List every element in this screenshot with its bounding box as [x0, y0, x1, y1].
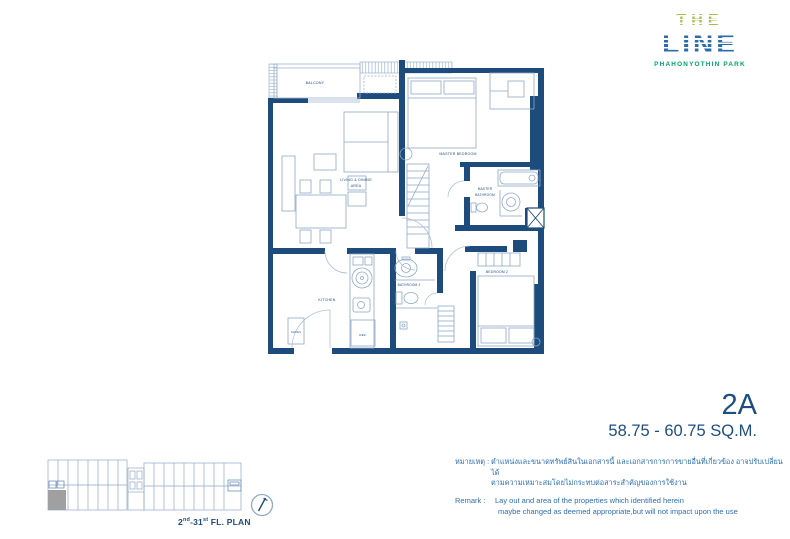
toilet: [471, 203, 488, 212]
remark-english: Remark : Lay out and area of the propert…: [455, 495, 785, 517]
coffee-table: [314, 154, 336, 170]
logo-line-text: LINE: [662, 31, 738, 57]
door-arcs: [292, 181, 470, 348]
label-bathroom2: BATHROOM 2: [398, 283, 421, 287]
bath2-toilet: [396, 292, 418, 304]
shower-drain: [400, 322, 407, 329]
vent-shaft: [527, 208, 544, 228]
unit-area-range: 58.75 - 60.75 SQ.M.: [608, 422, 757, 440]
bathtub: [498, 170, 540, 186]
bath-sink: [500, 190, 522, 216]
remark-thai: หมายเหตุ : ตำแหน่งและขนาดทรัพย์สินในเอกส…: [455, 457, 785, 489]
sofa: [344, 112, 398, 206]
bed2-wardrobe: [478, 253, 520, 266]
remark-english-line1: Lay out and area of the properties which…: [495, 495, 785, 506]
dining-set: [296, 180, 346, 243]
label-ref: REF.: [359, 333, 366, 337]
hob: [352, 268, 372, 288]
remark-english-line2: maybe changed as deemed appropriate,but …: [495, 506, 785, 517]
label-living-dining-1: LIVING & DINING: [340, 178, 372, 182]
remark-thai-line1: ตำแหน่งและขนาดทรัพย์สินในเอกสารนี้ และเอ…: [491, 457, 785, 478]
master-wardrobe: [490, 73, 534, 109]
bed2: [478, 276, 534, 346]
label-master-bath-1: MASTER: [478, 187, 493, 191]
label-bedroom2: BEDROOM 2: [486, 270, 508, 274]
label-kitchen: KITCHEN: [318, 298, 335, 302]
floor-sup1: nd: [183, 517, 190, 523]
highlighted-unit-2a: [48, 490, 66, 510]
label-balcony: BALCONY: [306, 81, 325, 85]
ac-ledge: [269, 62, 452, 98]
remark-english-label: Remark :: [455, 495, 495, 517]
label-living-dining-2: AREA: [351, 184, 362, 188]
north-arrow-icon: [249, 492, 275, 518]
remark-thai-line2: ตามความเหมาะสมโดยไม่กระทบต่อสาระสำคัญของ…: [491, 478, 785, 489]
furniture: [282, 73, 540, 348]
corridor-wardrobe: [407, 164, 429, 248]
label-master-bedroom: MASTER BEDROOM: [439, 152, 476, 156]
bath2-sink: [395, 257, 435, 280]
floor-suffix: FL. PLAN: [208, 517, 250, 527]
remark-thai-label: หมายเหตุ :: [455, 457, 491, 489]
ac-condenser-dashed: [364, 76, 396, 93]
building-key-plan: [40, 458, 246, 516]
label-shoes: SHOES: [291, 330, 301, 334]
unit-code: 2A: [608, 390, 757, 420]
floor-mid: -31: [190, 517, 203, 527]
tv-console: [282, 156, 295, 211]
label-master-bath-2: BATHROOM: [475, 193, 495, 197]
floor-plan-label: 2nd-31st FL. PLAN: [178, 517, 251, 527]
service-shaft: [438, 306, 454, 342]
unit-floor-plan: BALCONY MASTER BEDROOM LIVING & DINING A…: [268, 56, 558, 364]
unit-info: 2A 58.75 - 60.75 SQ.M.: [608, 390, 757, 440]
logo-the-text: THE: [677, 13, 724, 28]
brand-logo: THE LINE PHAHONYOTHIN PARK: [646, 12, 754, 68]
walls: [268, 60, 544, 354]
logo-subtitle: PHAHONYOTHIN PARK: [646, 61, 754, 68]
master-bed: [408, 78, 476, 148]
